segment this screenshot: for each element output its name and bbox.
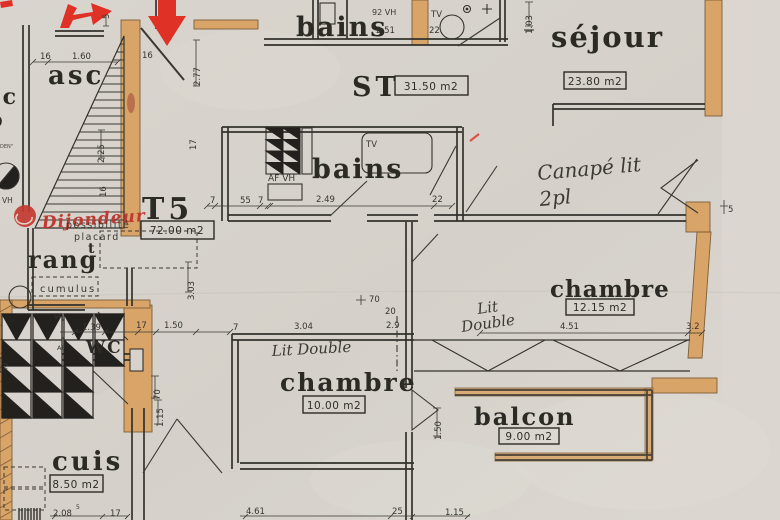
dim: 1.03 [525, 15, 535, 34]
room-label-bains-mid: bains [312, 154, 403, 185]
dim: 22 [429, 26, 440, 36]
dim: 1.50 [164, 321, 183, 331]
dim: 1.39 [82, 323, 101, 333]
dim: 5 [728, 205, 733, 215]
dim: 7 [210, 196, 215, 206]
room-label-wc: WC [85, 338, 123, 358]
dim: 55 [240, 196, 251, 206]
dim: 7 [258, 196, 263, 206]
dim: 20 [385, 307, 396, 317]
dim: 17 [136, 321, 147, 331]
dim: 5 [76, 504, 80, 511]
dim: 16 [40, 52, 51, 62]
dim: 2.25 [97, 144, 107, 163]
dim: 1.15 [156, 408, 166, 427]
area-cuis: 8.50 m2 [52, 479, 99, 491]
scanned-floorplan-page: Dijondeur asc bains ST séjour T5 bains r… [0, 0, 780, 520]
area-sejour: 23.80 m2 [568, 76, 622, 88]
room-label-balcon: balcon [474, 402, 576, 431]
note-tv-bath: TV [365, 140, 377, 150]
floorplan-drawing: Dijondeur asc bains ST séjour T5 bains r… [0, 0, 780, 520]
apartment-type-label: T5 [142, 192, 193, 227]
dim: 4.51 [560, 322, 579, 332]
dim: 3.2 [686, 322, 700, 332]
note-canape-2: 2pl [537, 184, 572, 211]
dim: 1.50 [434, 421, 444, 440]
dim: 70 [369, 295, 380, 305]
note-af-wc: AF [57, 344, 65, 352]
dim: 7 [233, 323, 238, 333]
dim: 2.49 [316, 195, 335, 205]
dim: 17 [110, 509, 121, 519]
note-possibilite: possibilité [66, 220, 130, 231]
edge-cut-letter: o [0, 107, 5, 133]
dim: 3.03 [187, 281, 197, 300]
room-label-sejour: séjour [551, 20, 664, 54]
area-st: 31.50 m2 [404, 81, 458, 93]
dim: 16 [99, 186, 109, 197]
note-placard: placard [74, 232, 120, 243]
dim: 1.15 [445, 508, 464, 518]
dim: 4.61 [246, 507, 265, 517]
dim: 16 [142, 51, 153, 61]
dim: 2.51 [376, 26, 395, 36]
dim: 3.04 [294, 322, 313, 332]
note-vh-left: VH [2, 196, 13, 205]
note-tv-top: TV [430, 10, 442, 20]
room-label-cuis: cuis [52, 447, 123, 477]
dim: 2.77 [193, 67, 203, 86]
area-balcon: 9.00 m2 [505, 431, 552, 443]
note-box-2: 2 [3, 362, 8, 371]
dim: 2.9 [386, 321, 400, 331]
dim: 5 [102, 14, 112, 19]
room-label-chambre-bottom: chambre [280, 368, 417, 397]
room-label-st: ST [352, 72, 400, 103]
dim: 22 [432, 195, 443, 205]
area-chambre-bottom: 10.00 m2 [307, 400, 361, 412]
dim: 25 [392, 507, 403, 517]
note-af-vh: AF VH [268, 174, 295, 184]
note-cumulus: cumulus [40, 284, 96, 295]
area-t5: 72.00 m2 [150, 225, 204, 237]
edge-tiny-note: DEN" [0, 144, 13, 150]
dim: 2.08 [53, 509, 72, 519]
area-chambre-right: 12.15 m2 [573, 302, 627, 314]
note-vh-wc: VH [54, 313, 63, 321]
dim: 17 [189, 139, 199, 150]
room-label-rangt-sup: t [88, 241, 96, 257]
dim: 1.60 [72, 52, 91, 62]
note-92-vh: 92 VH [372, 8, 396, 17]
room-label-asc: asc [48, 61, 104, 91]
dim: 70 [153, 389, 163, 400]
red-smudge [127, 93, 135, 113]
